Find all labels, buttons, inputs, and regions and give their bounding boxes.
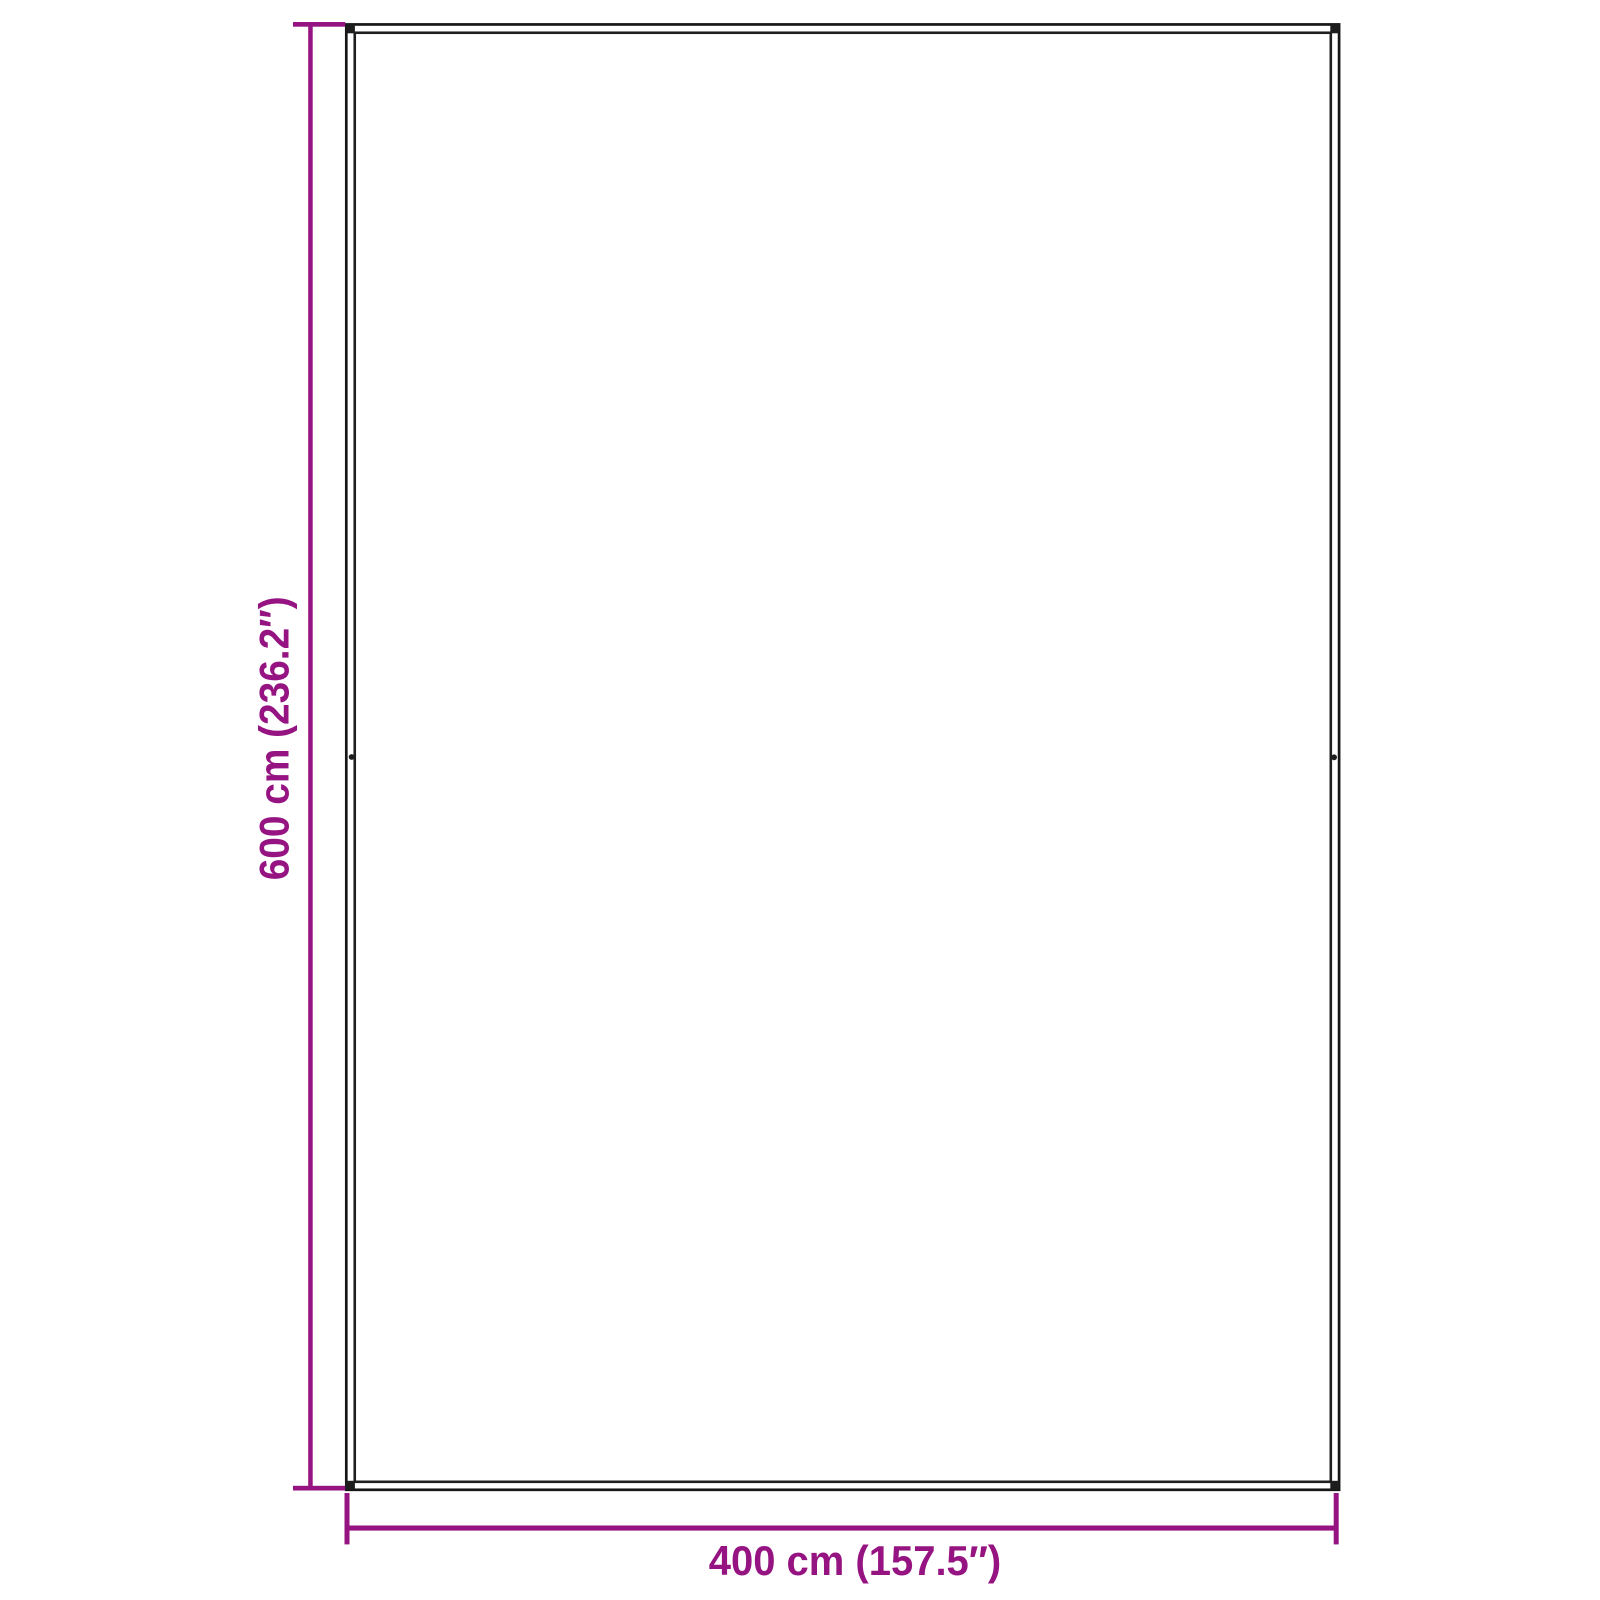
svg-text:600 cm (236.2″): 600 cm (236.2″) [251, 596, 298, 880]
svg-text:400 cm (157.5″): 400 cm (157.5″) [709, 1537, 1002, 1584]
